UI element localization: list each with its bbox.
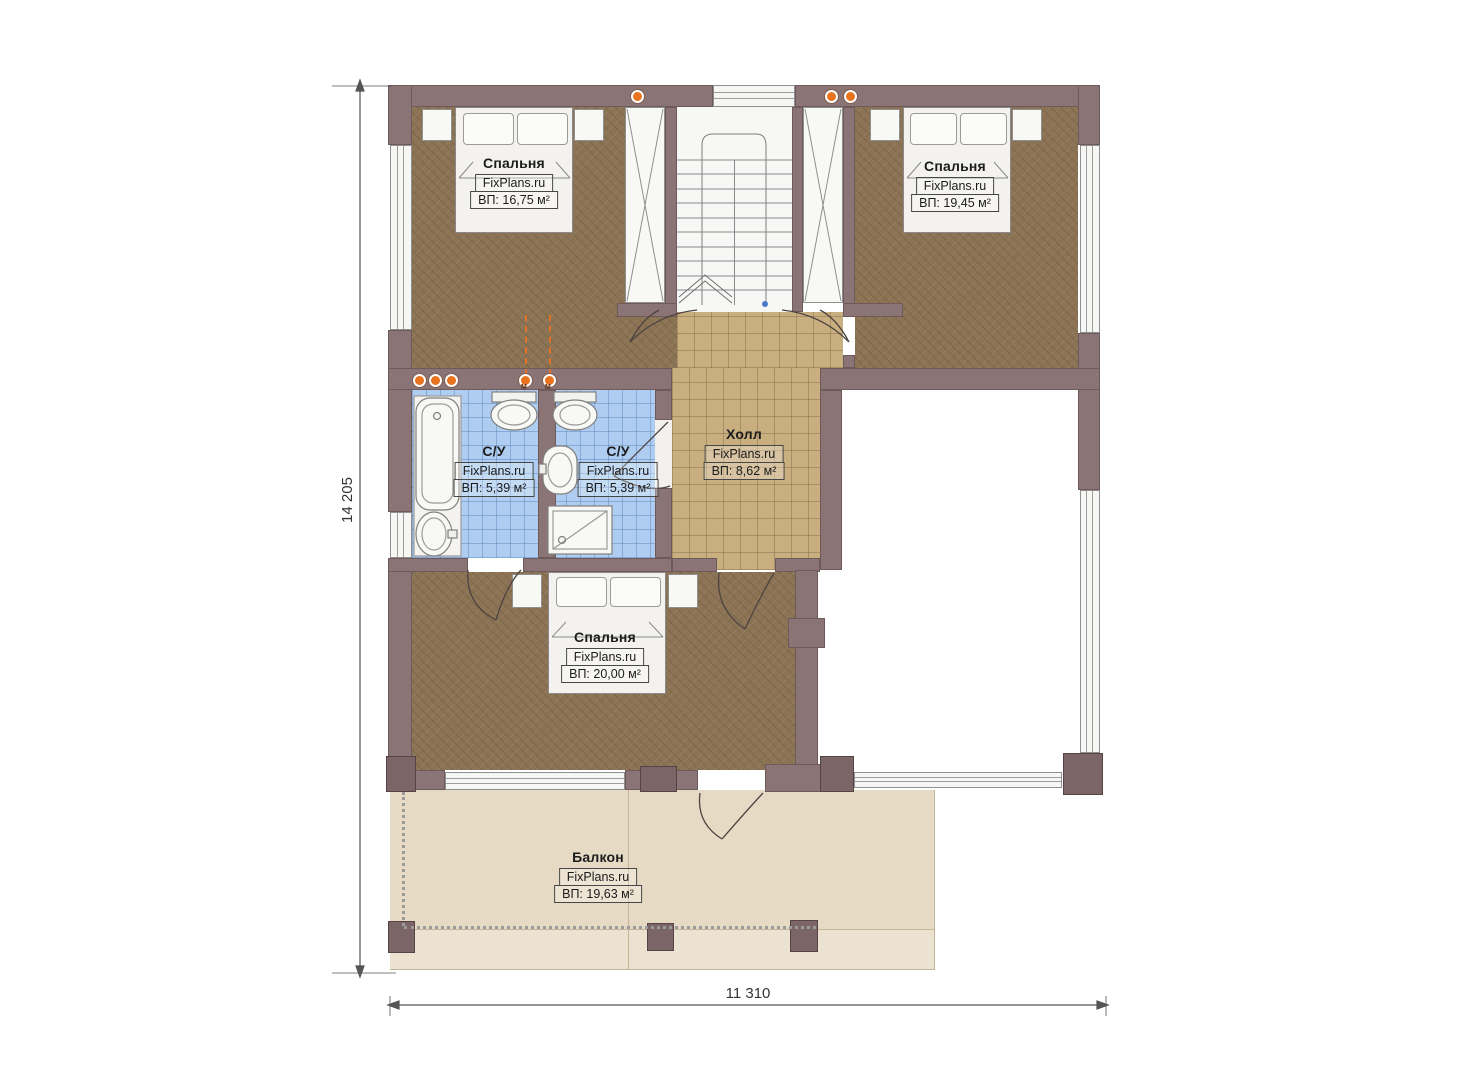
dimension-width: 11 310 — [726, 985, 771, 1002]
floor-plan: М М Спальня FixPlans.ru ВП: 16,75 м² Спа… — [0, 0, 1474, 1080]
dimension-height: 14 205 — [339, 477, 356, 523]
dimension-lines: 14 205 11 310 — [0, 0, 1474, 1080]
